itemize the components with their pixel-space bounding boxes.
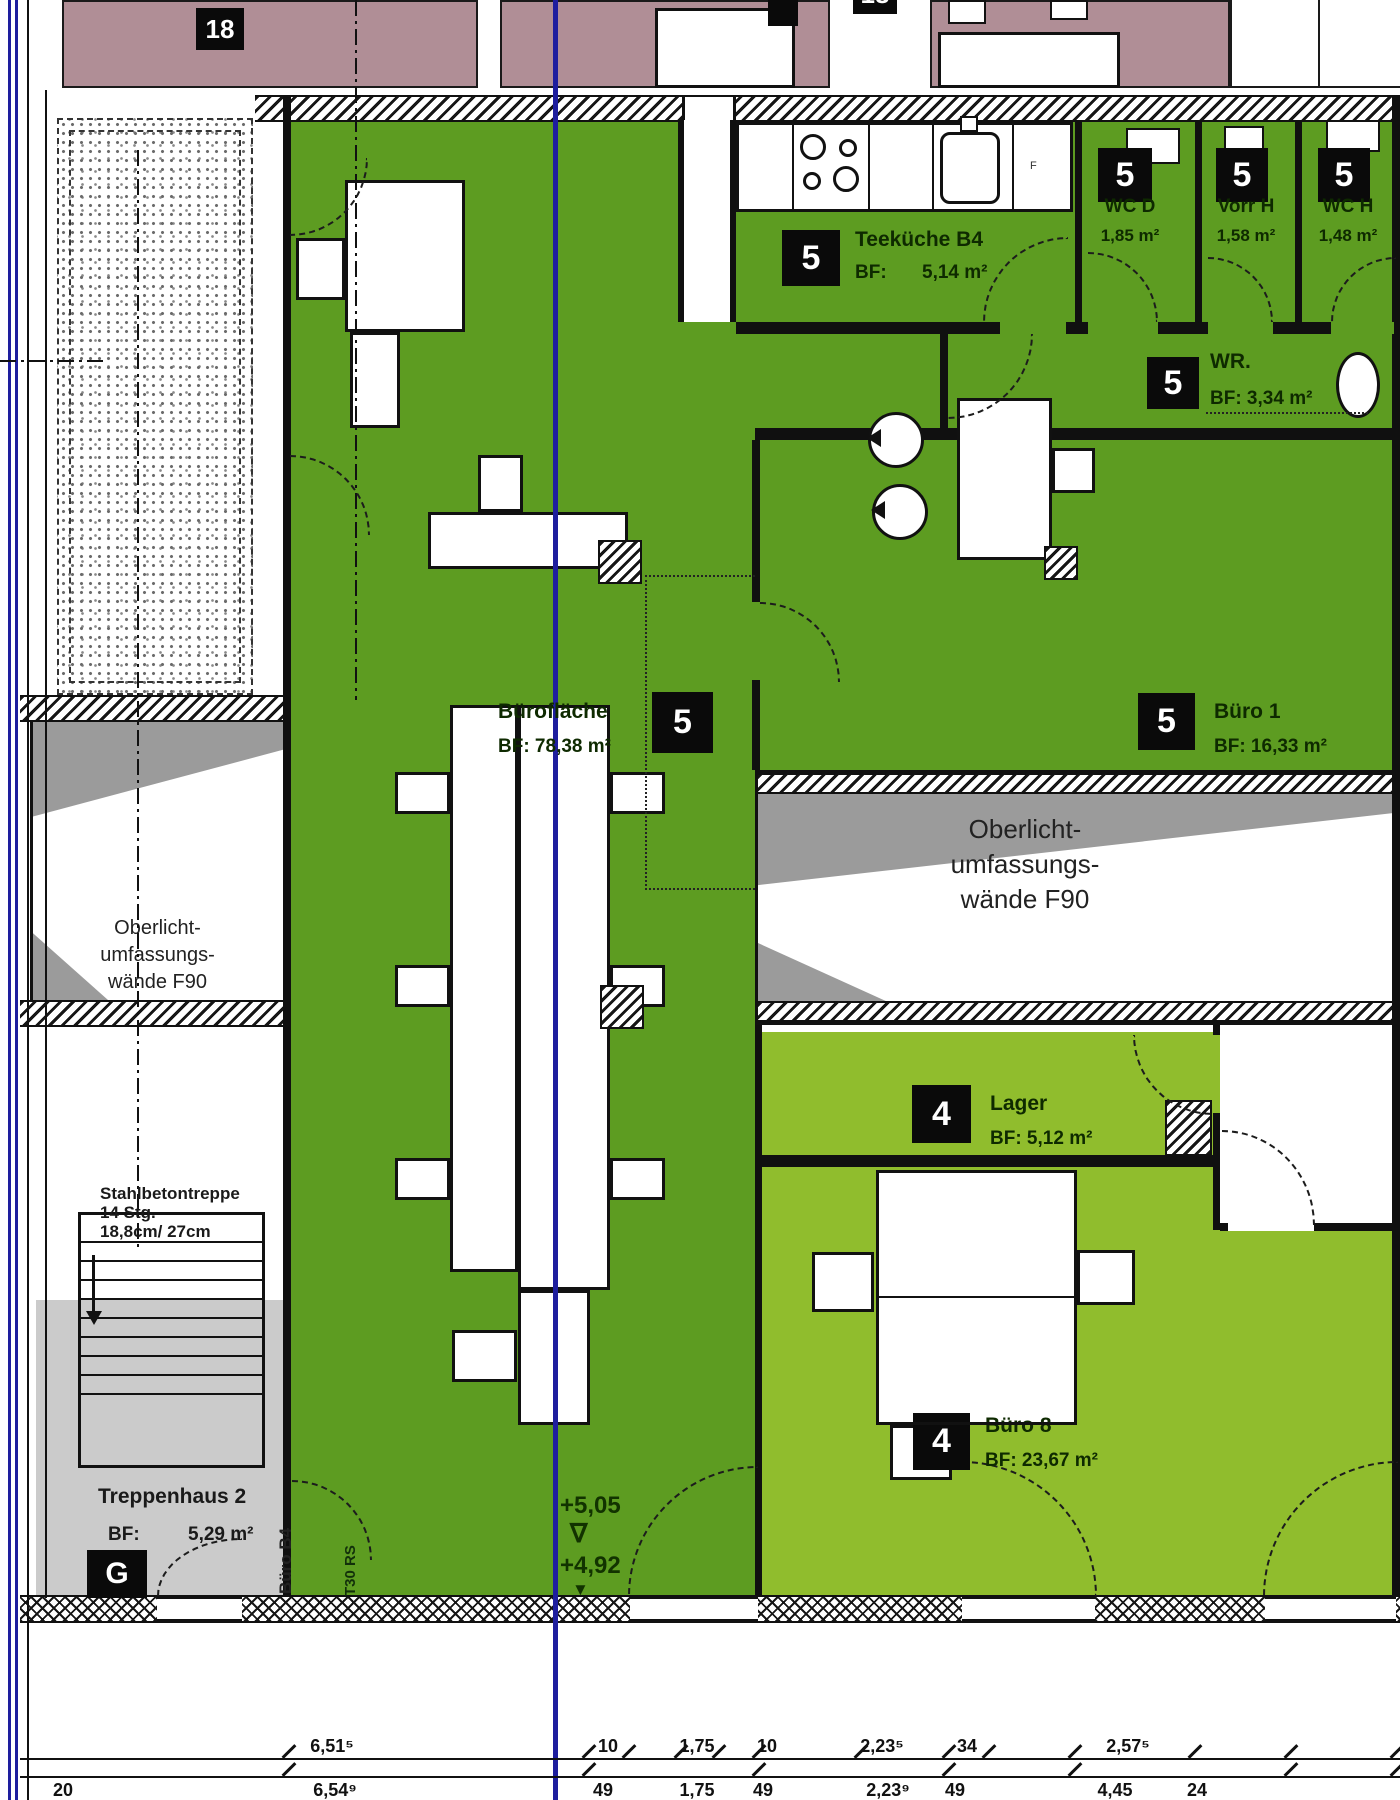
bueroflaeche-name: Bürofläche [498, 700, 608, 724]
dim-tick [1188, 1744, 1203, 1759]
chair-r3 [610, 1158, 665, 1200]
oberlicht-right-wall-bottom [758, 1001, 1397, 1022]
oberlicht-left-wall-top [20, 695, 290, 722]
wr-dotted-line [1206, 412, 1368, 414]
dim-tick [942, 1762, 957, 1777]
desk-topleft-return [350, 332, 400, 428]
vorrh-area: 1,58 m² [1198, 226, 1294, 246]
wr-name: WR. [1210, 350, 1251, 374]
buero8-chair-left [812, 1252, 874, 1312]
building-tab-1 [948, 0, 986, 24]
dim-r2-6: 49 [915, 1780, 995, 1800]
treppenhaus-name: Treppenhaus 2 [98, 1485, 246, 1509]
wr-area: BF: 3,34 m² [1210, 388, 1312, 410]
door-gap-kitchen [1000, 322, 1066, 334]
pier-2 [600, 985, 644, 1029]
buero1-name: Büro 1 [1214, 700, 1281, 724]
building-number-left: 18 [196, 8, 244, 50]
stair-note-1: Stahlbetontreppe [100, 1184, 240, 1204]
stair-arrow-line [92, 1255, 95, 1313]
stipple-inner-dash [69, 130, 241, 683]
oberlicht-right-line3: wände F90 [880, 882, 1170, 917]
sink-basin [940, 132, 1000, 204]
treppenhaus-numbox: G [87, 1550, 147, 1598]
teekueche-bf: BF: [855, 262, 887, 284]
threshold-office [630, 1597, 758, 1621]
dim-r2-8: 24 [1157, 1780, 1237, 1800]
teekueche-area: 5,14 m² [922, 262, 987, 284]
counter-div-4 [1012, 124, 1014, 210]
wcd-numbox: 5 [1098, 148, 1152, 202]
building-line [1318, 0, 1320, 88]
desk-topleft [345, 180, 465, 332]
bueroflaeche-numbox: 5 [652, 692, 713, 753]
wch-area: 1,48 m² [1300, 226, 1396, 246]
office-left-wall [283, 95, 291, 1598]
stair-treads [81, 1241, 262, 1401]
counter-div-3 [932, 124, 934, 210]
sink-tap [960, 116, 978, 132]
kitchen-counter [736, 122, 1073, 212]
corridor-floor [762, 322, 948, 432]
wc-divider-2 [1195, 120, 1202, 322]
teekueche-numbox: 5 [782, 230, 840, 286]
dim-r1-0: 6,51⁵ [292, 1736, 372, 1757]
oberlicht-left-wall-bottom [20, 1000, 290, 1027]
bueroflaeche-area: BF: 78,38 m² [498, 736, 611, 758]
treppenhaus-bf: BF: [108, 1524, 140, 1546]
chair-arrow-icon [867, 429, 881, 447]
desk-topleft-chair [296, 238, 345, 300]
pier-3 [1044, 546, 1078, 580]
stair-arrow-head-icon [86, 1311, 102, 1325]
shaft-f-label: F [1030, 160, 1037, 172]
buero-b4-tag: Büro B4 [276, 1528, 296, 1594]
wc-divider-3 [1295, 120, 1302, 322]
dim-tick [1068, 1762, 1083, 1777]
dim-tick [752, 1762, 767, 1777]
wc-divider-1 [1075, 120, 1082, 322]
stove-burner-3 [803, 172, 821, 190]
dim-r1-6: 2,57⁵ [1088, 1736, 1168, 1757]
level-nabla-icon: ∇ [570, 1518, 587, 1549]
dim-r2-0: 20 [38, 1780, 88, 1800]
level-lower: +4,92 [560, 1552, 621, 1580]
oberlicht-left-line3: wände F90 [50, 969, 265, 996]
building-mass-left [62, 0, 478, 88]
swivel-chair-2 [872, 484, 928, 540]
edge-line-1 [27, 0, 29, 1800]
wcd-area: 1,85 m² [1082, 226, 1178, 246]
floor-plan: 18 18 Oberlicht- umfassungs- wände F90 O… [0, 0, 1400, 1800]
threshold-buero8a [962, 1597, 1095, 1621]
lager-bottom-wall [755, 1155, 1220, 1167]
dim-r1-2: 1,75 [657, 1736, 737, 1757]
meeting-table-right [518, 705, 610, 1290]
buero8-desk-divider [879, 1296, 1074, 1298]
stair-note-2: 14 Stg. [100, 1203, 156, 1223]
dim-r2-7: 4,45 [1075, 1780, 1155, 1800]
oberlicht-left-line2: umfassungs- [50, 942, 265, 969]
stove-burner-2 [839, 139, 857, 157]
chair-arrow-icon [871, 501, 885, 519]
oberlicht-left-label: Oberlicht- umfassungs- wände F90 [50, 915, 265, 996]
building-white-far-right [1230, 0, 1400, 88]
edge-line-2 [45, 90, 47, 1598]
oberlicht-right-line2: umfassungs- [880, 847, 1170, 882]
shaft-void [684, 120, 730, 322]
dim-line-2 [20, 1776, 1400, 1778]
chair-l3 [395, 1158, 450, 1200]
lager-numbox: 4 [912, 1085, 971, 1143]
treppenhaus-area: 5,29 m² [188, 1524, 253, 1546]
kitchen-wc-bottom-wall [736, 322, 1400, 334]
desk-mid-return [478, 455, 523, 512]
dim-tick [1068, 1744, 1083, 1759]
wch-numbox: 5 [1318, 148, 1370, 202]
pier-1 [598, 540, 642, 584]
dim-r1-4: 2,23⁵ [842, 1736, 922, 1757]
stove-burner-1 [800, 134, 826, 160]
door-gap-wch [1331, 322, 1394, 334]
section-line-main [553, 0, 558, 1800]
chair-bottom [452, 1330, 517, 1382]
dim-r2-2: 49 [563, 1780, 643, 1800]
wr-numbox: 5 [1147, 357, 1199, 409]
buero1-numbox: 5 [1138, 693, 1195, 750]
counter-div-1 [792, 124, 794, 210]
dim-tick [282, 1762, 297, 1777]
dim-tick [582, 1762, 597, 1777]
lager-name: Lager [990, 1092, 1047, 1116]
dim-r1-5: 34 [927, 1736, 1007, 1757]
wch-name: WC H [1302, 196, 1394, 218]
buero8-chair-right [1077, 1250, 1135, 1305]
wr-left-wall [940, 334, 948, 428]
building-outline-right [938, 32, 1120, 88]
chimney-block [768, 0, 798, 26]
threshold-buero8b [1265, 1597, 1396, 1621]
stair-outline [78, 1212, 265, 1468]
meeting-table-left [450, 705, 518, 1272]
building-number-right: 18 [853, 0, 897, 14]
stove-burner-4 [833, 166, 859, 192]
wr-buero1-wall [755, 428, 1400, 440]
dim-tick [1284, 1762, 1299, 1777]
shaft-slot [682, 97, 736, 120]
dim-line-1 [20, 1758, 1400, 1760]
buero8-name: Büro 8 [985, 1414, 1052, 1438]
section-line-left-b [15, 0, 18, 1800]
chair-l2 [395, 965, 450, 1007]
dim-r2-4: 49 [723, 1780, 803, 1800]
level-upper: +5,05 [560, 1492, 621, 1520]
lager-area: BF: 5,12 m² [990, 1128, 1092, 1150]
swivel-chair-1 [868, 412, 924, 468]
t30-rs-door-tag: T30 RS [342, 1545, 359, 1596]
oberlicht-right-line1: Oberlicht- [880, 812, 1170, 847]
dim-tick [1390, 1762, 1400, 1777]
vorrh-name: Vorr H [1200, 196, 1292, 218]
buero1-desk [957, 398, 1052, 560]
dim-r1-3: 10 [727, 1736, 807, 1757]
counter-div-2 [868, 124, 870, 210]
buero1-area: BF: 16,33 m² [1214, 736, 1327, 758]
door-gap-wcd [1088, 322, 1158, 334]
door-gap-vorrh [1208, 322, 1273, 334]
neighbour-stipple-area [57, 118, 253, 695]
oberlicht-right-wall-top [758, 773, 1397, 794]
wcd-name: WC D [1085, 196, 1175, 218]
dim-r1-1: 10 [568, 1736, 648, 1757]
buero1-chair [1052, 448, 1095, 493]
axis-line-v2 [137, 150, 139, 1250]
level-arrow-icon: ▼ [572, 1580, 589, 1600]
threshold-trepp [157, 1597, 242, 1621]
dim-tick [1284, 1744, 1299, 1759]
vorrh-symbol [1224, 126, 1264, 150]
vorrh-numbox: 5 [1216, 148, 1268, 202]
buero8-desk-edge-line [876, 1422, 1077, 1425]
teekueche-name: Teeküche B4 [855, 228, 983, 252]
building-tab-2 [1050, 0, 1088, 20]
section-line-left-a [8, 0, 11, 1800]
chair-l1 [395, 772, 450, 814]
oberlicht-left-line1: Oberlicht- [50, 915, 265, 942]
exterior-wall-top [255, 95, 1400, 122]
buero8-area: BF: 23,67 m² [985, 1450, 1098, 1472]
dim-r2-1: 6,54⁹ [295, 1780, 375, 1800]
oberlicht-right-label: Oberlicht- umfassungs- wände F90 [880, 812, 1170, 917]
dim-tick [1390, 1744, 1400, 1759]
wr-basin [1336, 352, 1380, 418]
axis-line-h1 [0, 360, 108, 362]
door-gap-lager [1213, 1035, 1220, 1113]
stair-note-3: 18,8cm/ 27cm [100, 1222, 211, 1242]
axis-line-v1 [355, 0, 357, 700]
